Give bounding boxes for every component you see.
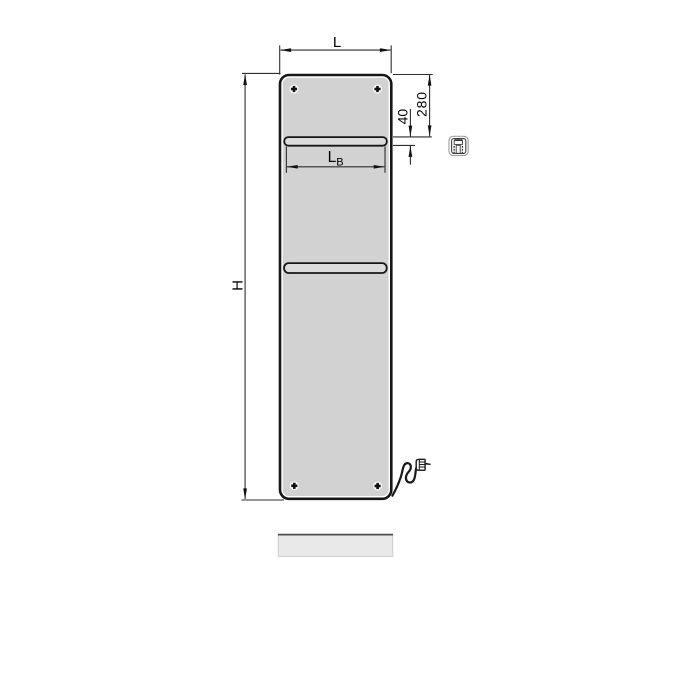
svg-text:280: 280 — [413, 91, 429, 117]
svg-text:H: H — [230, 280, 247, 291]
svg-text:40: 40 — [395, 109, 411, 125]
svg-text:L: L — [333, 34, 341, 51]
